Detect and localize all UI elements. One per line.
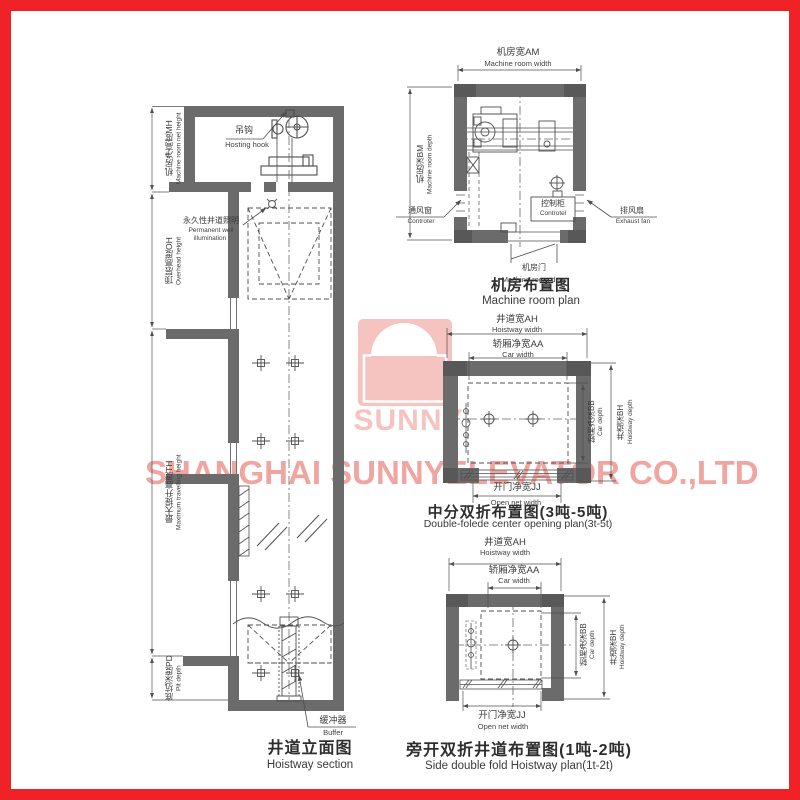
callout-vent-window-en: Controter bbox=[391, 218, 451, 227]
callout-hoisting-hook-cn: 吊钩 bbox=[224, 125, 264, 137]
callout-vent-window-cn: 通风窗 bbox=[395, 206, 445, 217]
dim-label-machine-room-depth-cn: 机房深BM bbox=[415, 124, 426, 204]
center-plan-car-depth-cn: 轿厢净深BB bbox=[587, 382, 597, 462]
dim-label-max-travel-en: Maximum travelling height bbox=[175, 437, 185, 547]
dim-label-pit-depth-cn: 底坑深度PD bbox=[164, 653, 175, 703]
hoistway-section-title-en: Hoistway section bbox=[240, 759, 380, 771]
dim-label-machine-room-depth-en: Machine room depth bbox=[426, 119, 436, 209]
callout-control-cabinet-en: Controtel bbox=[531, 210, 575, 219]
dim-label-machine-room-width-en: Machine room width bbox=[468, 59, 568, 69]
center-plan-hoistway-depth-cn: 井道深BH bbox=[616, 384, 626, 460]
hoistway-section-title-cn: 井道立面图 bbox=[240, 740, 380, 758]
side-plan-hoistway-width-en: Hoistway width bbox=[465, 548, 545, 557]
machine-room-plan-title-cn: 机房布置图 bbox=[461, 277, 601, 294]
center-plan-hoistway-width-en: Hoistway width bbox=[477, 325, 557, 334]
center-plan-hoistway-depth-en: Hoistway depth bbox=[627, 382, 636, 462]
machine-room-plan-title-en: Machine room plan bbox=[461, 295, 601, 308]
side-plan-title-en: Side double fold Hoistway plan(1t-2t) bbox=[409, 760, 629, 772]
side-plan-open-width-en: Open net width bbox=[463, 722, 543, 731]
callout-well-illumination-en2: illumination bbox=[175, 235, 245, 243]
technical-drawing-svg bbox=[11, 11, 800, 800]
drawing-sheet: SUNNY SHANGHAI SUNNYELEVATOR CO.,LTD bbox=[0, 0, 800, 800]
callout-exhaust-fan-en: Exhaust fan bbox=[603, 218, 663, 227]
side-plan-car-depth-en: Car depth bbox=[589, 610, 598, 680]
hoistway-section-drawing bbox=[152, 106, 356, 727]
dim-label-pit-depth-en: Pit depth bbox=[175, 659, 185, 697]
center-plan-car-width-en: Car width bbox=[478, 350, 558, 359]
callout-well-illumination-cn: 永久性井道照明 bbox=[171, 216, 251, 227]
callout-exhaust-fan-cn: 排风扇 bbox=[607, 206, 657, 217]
side-plan-car-width-en: Car width bbox=[474, 576, 554, 585]
dim-label-max-travel-cn: 最大提升高度TH bbox=[164, 442, 175, 542]
dim-label-machine-room-net-height-en: Machine room net height bbox=[175, 98, 185, 198]
side-plan-hoistway-depth-en: Hoistway depth bbox=[619, 607, 628, 687]
callout-well-illumination-en1: Permanent well bbox=[176, 227, 246, 235]
callout-machine-room-door-cn: 机房门 bbox=[504, 263, 564, 274]
center-plan-open-width-cn: 开门净宽JJ bbox=[477, 482, 557, 494]
callout-buffer-cn: 缓冲器 bbox=[308, 715, 358, 727]
side-plan-hoistway-depth-cn: 井道深BH bbox=[609, 609, 619, 685]
center-plan-car-depth-en: Car depth bbox=[597, 387, 606, 457]
side-plan-title-cn: 旁开双折井道布置图(1吨-2吨) bbox=[409, 742, 629, 760]
dim-label-machine-room-net-height-cn: 机房净高度MH bbox=[164, 103, 175, 193]
side-plan-car-depth-cn: 轿厢净深BB bbox=[579, 605, 589, 685]
callout-hoisting-hook-en: Hosting hook bbox=[217, 140, 277, 149]
callout-control-cabinet-cn: 控制柜 bbox=[533, 199, 573, 210]
side-plan-open-width-cn: 开门净宽JJ bbox=[462, 710, 542, 722]
dim-label-overhead-height-cn: 顶层高度OH bbox=[164, 216, 175, 306]
callout-buffer-en: Buffer bbox=[308, 728, 358, 737]
dim-label-machine-room-width-cn: 机房宽AM bbox=[478, 47, 558, 59]
center-plan-title-en: Double-folede center opening plan(3t-5t) bbox=[398, 519, 638, 531]
